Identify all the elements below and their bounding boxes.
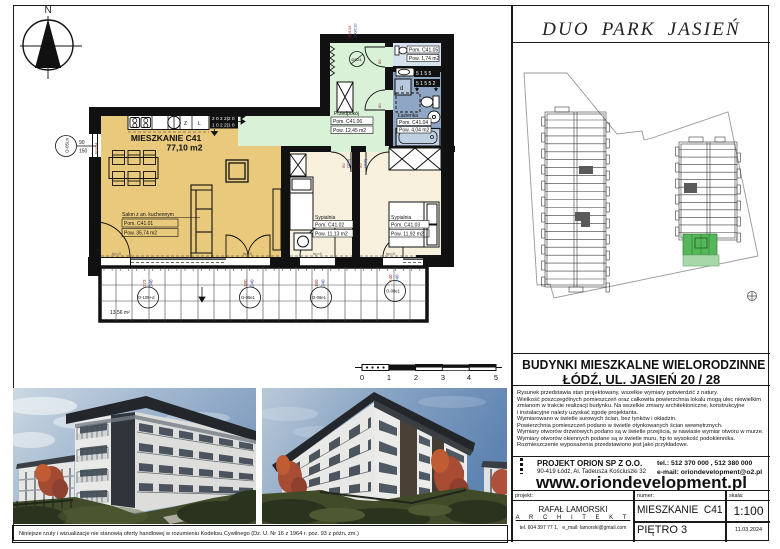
svg-text:O-06e1: O-06e1 bbox=[312, 295, 327, 300]
svg-text:140: 140 bbox=[388, 274, 393, 282]
svg-text:Pom. C41.01: Pom. C41.01 bbox=[124, 221, 153, 227]
svg-text:Salon z an. kuchennym: Salon z an. kuchennym bbox=[122, 212, 174, 218]
svg-text:5 1 5 5: 5 1 5 5 bbox=[416, 71, 432, 77]
svg-text:1: 1 bbox=[387, 373, 391, 382]
svg-text:Pom. C41.05: Pom. C41.05 bbox=[409, 48, 438, 54]
svg-text:2: 2 bbox=[414, 373, 418, 382]
svg-text:90: 90 bbox=[79, 140, 85, 146]
svg-text:(200): (200) bbox=[346, 158, 351, 168]
svg-text:240: 240 bbox=[395, 274, 400, 282]
svg-text:3: 3 bbox=[441, 373, 445, 382]
svg-text:hp=0: hp=0 bbox=[112, 251, 122, 256]
svg-text:hp=0: hp=0 bbox=[386, 251, 396, 256]
svg-text:O-08e1: O-08e1 bbox=[386, 289, 401, 294]
svg-text:hp=0: hp=0 bbox=[243, 251, 253, 256]
svg-text:90/104: 90/104 bbox=[347, 25, 352, 38]
svg-text:273: 273 bbox=[142, 279, 147, 287]
svg-text:240: 240 bbox=[321, 279, 326, 287]
svg-text:Przedpokój: Przedpokój bbox=[334, 111, 359, 117]
svg-text:4: 4 bbox=[467, 373, 471, 382]
svg-text:77,10 m2: 77,10 m2 bbox=[167, 143, 203, 153]
svg-text:Pow. 12,45 m2: Pow. 12,45 m2 bbox=[333, 128, 366, 134]
svg-text:DS24: DS24 bbox=[352, 57, 363, 62]
svg-text:(200): (200) bbox=[363, 158, 368, 168]
svg-text:5 1 5 5 2: 5 1 5 5 2 bbox=[416, 81, 436, 87]
svg-text:240: 240 bbox=[250, 279, 255, 287]
svg-text:Pow. 1,74 m2: Pow. 1,74 m2 bbox=[409, 56, 440, 62]
svg-text:5: 5 bbox=[494, 373, 498, 382]
svg-text:Pom. C41.04: Pom. C41.04 bbox=[399, 120, 428, 126]
svg-text:Pow. 35,74 m2: Pow. 35,74 m2 bbox=[124, 231, 157, 237]
svg-text:200/210: 200/210 bbox=[353, 23, 358, 38]
svg-text:180: 180 bbox=[314, 279, 319, 287]
svg-text:O-105+d: O-105+d bbox=[138, 295, 155, 300]
svg-text:1 0 2 2|1 0: 1 0 2 2|1 0 bbox=[212, 123, 235, 129]
svg-text:hp=0: hp=0 bbox=[313, 251, 323, 256]
svg-text:Łazienka: Łazienka bbox=[398, 113, 418, 119]
svg-text:N: N bbox=[45, 5, 52, 16]
svg-text:150: 150 bbox=[79, 149, 88, 155]
svg-text:Sypialnia: Sypialnia bbox=[315, 215, 336, 221]
svg-text:Sypialnia: Sypialnia bbox=[391, 215, 412, 221]
svg-text:O-05Ln: O-05Ln bbox=[65, 137, 70, 153]
svg-text:Pom. C41.06: Pom. C41.06 bbox=[333, 119, 362, 125]
svg-text:Pom. C41.02: Pom. C41.02 bbox=[315, 223, 344, 229]
svg-text:0: 0 bbox=[360, 373, 364, 382]
svg-text:Pow. 11,92 m2: Pow. 11,92 m2 bbox=[391, 232, 424, 238]
svg-text:13,56 m²: 13,56 m² bbox=[110, 310, 130, 316]
svg-text:O-05e1: O-05e1 bbox=[241, 295, 256, 300]
svg-text:hp=84: hp=84 bbox=[94, 142, 99, 154]
svg-text:2 0 2 2|2 0: 2 0 2 2|2 0 bbox=[212, 116, 235, 122]
svg-text:80: 80 bbox=[377, 59, 382, 64]
svg-text:Pom. C41.03: Pom. C41.03 bbox=[391, 223, 420, 229]
svg-text:Pow. 4,04 m2: Pow. 4,04 m2 bbox=[399, 128, 430, 134]
svg-text:d: d bbox=[400, 86, 403, 92]
svg-text:L: L bbox=[198, 121, 201, 127]
svg-text:180: 180 bbox=[243, 279, 248, 287]
svg-text:Z: Z bbox=[184, 121, 187, 127]
svg-text:Pow. 11,13 m2: Pow. 11,13 m2 bbox=[315, 232, 348, 238]
svg-text:MIESZKANIE C41: MIESZKANIE C41 bbox=[131, 133, 202, 143]
svg-text:80: 80 bbox=[377, 103, 382, 108]
svg-text:240: 240 bbox=[149, 279, 154, 287]
